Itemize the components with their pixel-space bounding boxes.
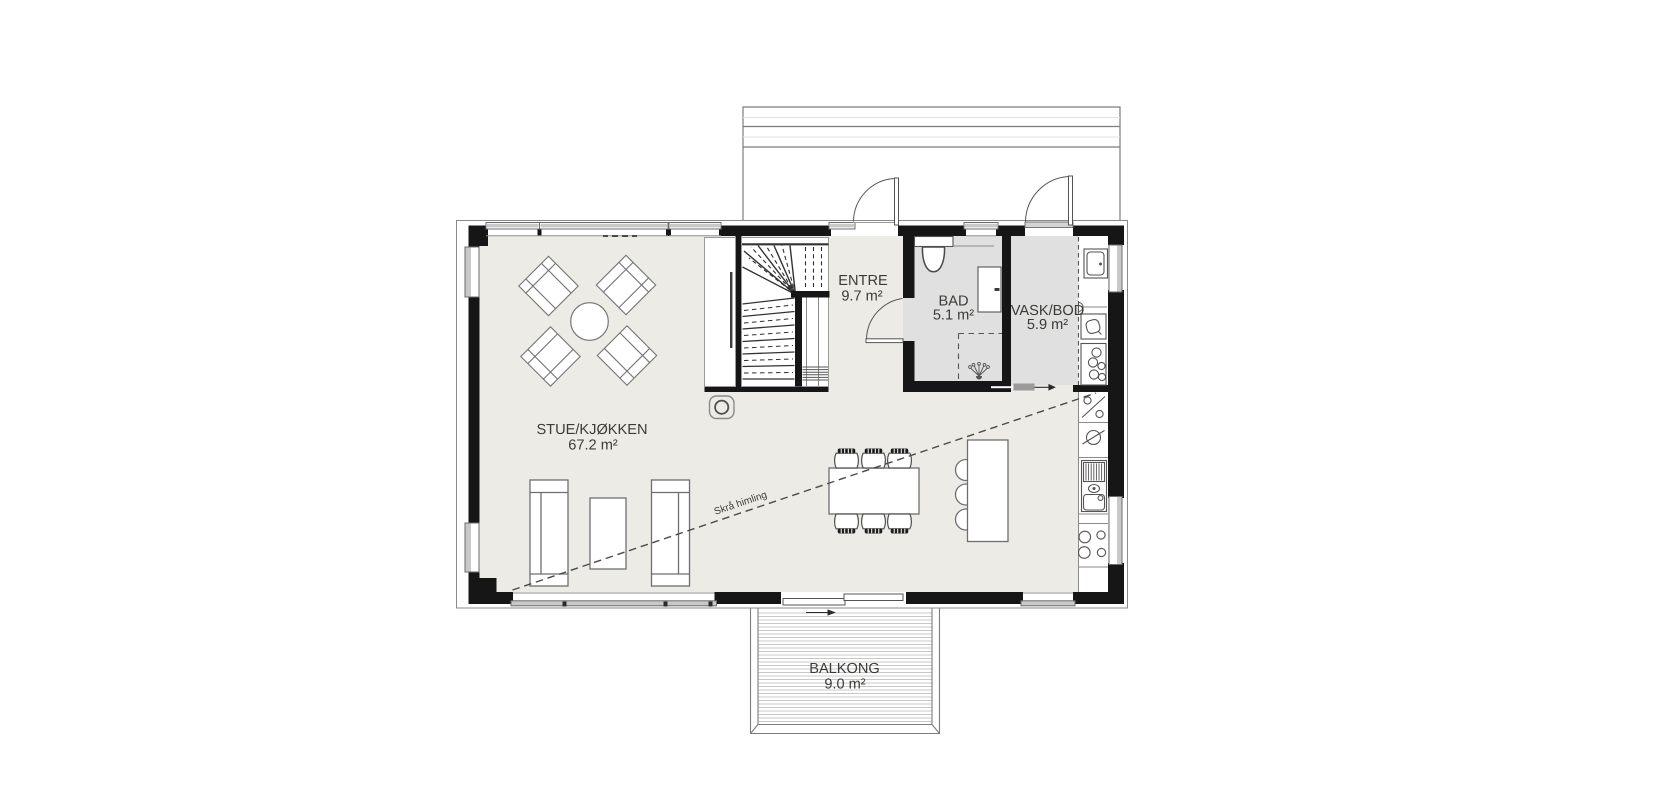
svg-text:9.7 m²: 9.7 m² [841,289,882,305]
svg-text:ENTRE: ENTRE [838,273,888,289]
svg-text:5.9 m²: 5.9 m² [1027,317,1068,333]
svg-text:5.1 m²: 5.1 m² [933,308,974,324]
svg-text:9.0 m²: 9.0 m² [824,677,865,693]
svg-text:BALKONG: BALKONG [809,661,880,677]
svg-text:STUE/KJØKKEN: STUE/KJØKKEN [536,422,647,438]
svg-text:67.2 m²: 67.2 m² [568,438,618,454]
